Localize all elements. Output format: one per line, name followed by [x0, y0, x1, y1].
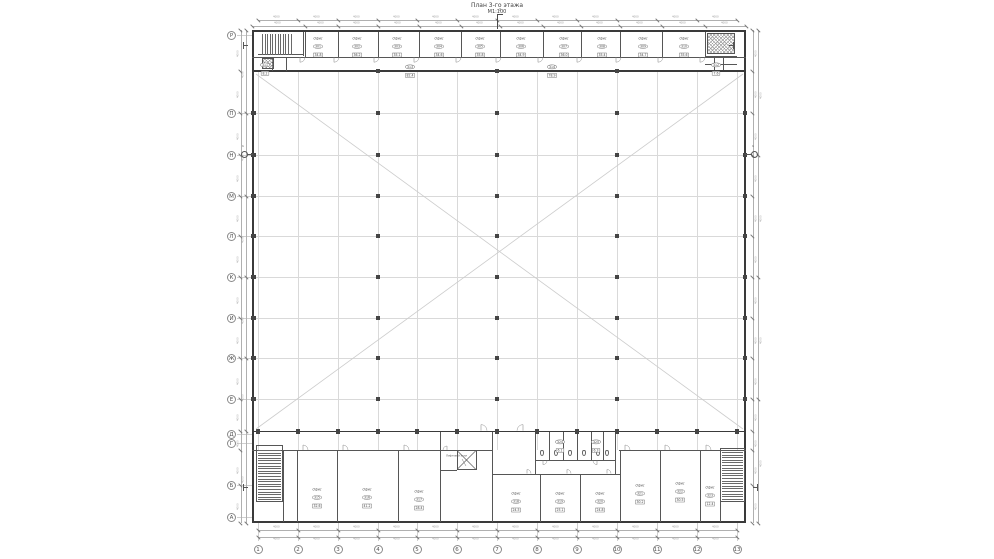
room-tag: Офис30434.6	[426, 37, 453, 58]
partition-wall	[457, 450, 458, 470]
section-label: 2	[499, 8, 501, 11]
dimension-label: 4000	[242, 317, 245, 324]
column	[376, 153, 381, 158]
dimension-label: 4000	[672, 538, 679, 541]
dimension-label: 4000	[237, 467, 240, 474]
room-area: 41.2	[362, 504, 372, 509]
dimension-tick	[750, 69, 754, 73]
dimension-label: 4000	[237, 256, 240, 263]
room-area: 34.9	[516, 53, 526, 58]
stair-tread	[722, 478, 743, 479]
stair-tread	[258, 471, 281, 472]
axis-bubble-bottom: 1	[254, 545, 263, 554]
partition-wall	[615, 432, 616, 474]
partition-wall	[540, 474, 541, 522]
dimension-tick	[238, 111, 242, 115]
room-area: 32.6	[312, 504, 322, 509]
section-marker	[247, 154, 253, 155]
axis-bubble-bottom: 7	[493, 545, 502, 554]
dimension-tick	[660, 24, 664, 28]
toilet-fixture-icon	[540, 450, 544, 456]
partition-wall	[476, 450, 477, 470]
stair-tread	[258, 489, 281, 490]
room-area: 24.8	[595, 508, 605, 513]
grid-line-vertical	[617, 72, 618, 450]
room-area: 34.7	[638, 53, 648, 58]
column	[495, 356, 500, 361]
dimension-tick	[250, 24, 254, 28]
dimension-label: 4000	[237, 440, 240, 447]
partition-wall	[577, 432, 578, 460]
dimension-tick	[238, 28, 242, 32]
room-tag: Офис31824.5	[503, 492, 530, 513]
dimension-label: 4000	[237, 378, 240, 385]
room-number: 310	[679, 44, 689, 49]
partition-wall	[398, 450, 399, 522]
section-marker	[497, 14, 498, 29]
dimension-label: 4000	[512, 538, 519, 541]
dimension-tick	[703, 24, 707, 28]
dimension-tick	[455, 535, 459, 539]
section-marker	[497, 14, 503, 15]
stair-tread	[722, 457, 743, 458]
dimension-tick	[238, 356, 242, 360]
dimension-label: 4000	[512, 16, 519, 19]
shaft-hatch	[707, 33, 735, 54]
partition-wall	[337, 450, 338, 522]
dimension-tick	[238, 448, 242, 452]
stair-tread	[270, 34, 271, 55]
room-number: 301	[313, 44, 323, 49]
axis-bubble-left: А	[227, 513, 236, 522]
column	[251, 194, 256, 199]
column	[615, 111, 620, 116]
room-number: 302	[352, 44, 362, 49]
dimension-label: 4000	[755, 440, 758, 447]
room-area: 8.2	[261, 71, 269, 76]
column	[743, 397, 748, 402]
section-label: 1	[242, 145, 244, 148]
room-number: 318	[511, 499, 521, 504]
stair-tread	[258, 492, 281, 493]
axis-bubble-bottom: 9	[573, 545, 582, 554]
room-number: 321	[635, 491, 645, 496]
stair-tread	[258, 453, 281, 454]
grid-line-vertical	[457, 72, 458, 450]
room-area: 24.5	[511, 508, 521, 513]
stair-tread	[258, 479, 281, 480]
grid-line-vertical	[537, 72, 538, 450]
dimension-tick	[415, 535, 419, 539]
stair-tread	[722, 483, 743, 484]
dimension-label: 4000	[237, 50, 240, 57]
column	[743, 356, 748, 361]
column	[376, 234, 381, 239]
dimension-tick	[256, 18, 260, 22]
room-area: 28.4	[414, 506, 424, 511]
column	[743, 234, 748, 239]
floor-plan-canvas: План 3-го этажа М1:100 12345678910111213…	[0, 0, 994, 559]
room-number: 320	[595, 499, 605, 504]
dimension-tick	[655, 535, 659, 539]
room-tag: Офис32312.4	[697, 486, 724, 507]
dimension-tick	[238, 275, 242, 279]
room-tag: Офис30634.9	[508, 37, 535, 58]
grid-line-vertical	[697, 72, 698, 450]
column	[376, 429, 381, 434]
column	[495, 275, 500, 280]
room-tag: Офис30934.7	[630, 37, 657, 58]
dimension-label: 4000	[672, 526, 679, 529]
column	[743, 275, 748, 280]
dimension-tick	[336, 24, 340, 28]
dimension-label: 4000	[755, 337, 758, 344]
dimension-tick	[750, 194, 754, 198]
room-area: 34.6	[434, 53, 444, 58]
dimension-tick	[618, 24, 622, 28]
dimension-label: 4000	[313, 538, 320, 541]
section-flag	[729, 45, 734, 46]
room-tag: Офис31728.4	[406, 490, 433, 511]
column	[251, 397, 256, 402]
stair-tread	[262, 34, 263, 55]
dimension-label: 4000	[636, 22, 643, 25]
room-tag: Офис30736.0	[551, 37, 578, 58]
partition-wall	[580, 474, 581, 522]
room-tag: Офис32130.2	[627, 484, 654, 505]
column	[495, 397, 500, 402]
partition-wall	[256, 445, 283, 446]
column	[336, 429, 341, 434]
room-tag: Офис30535.8	[467, 37, 494, 58]
column	[575, 429, 580, 434]
partition-wall	[492, 432, 493, 474]
grid-line-vertical	[378, 72, 379, 450]
partition-wall	[581, 32, 582, 57]
dimension-tick	[417, 24, 421, 28]
dimension-label: 4000	[393, 16, 400, 19]
partition-wall	[419, 32, 420, 57]
room-area: 7.6	[712, 71, 720, 76]
partition-wall	[535, 432, 536, 474]
axis-bubble-bottom: 3	[334, 545, 343, 554]
column	[376, 275, 381, 280]
stair-tread	[258, 473, 281, 474]
room-tag: Офис30335.1	[384, 37, 411, 58]
axis-bubble-bottom: 5	[413, 545, 422, 554]
room-tag: 3246.1	[547, 436, 574, 453]
dimension-label: 4000	[672, 16, 679, 19]
column	[615, 275, 620, 280]
dimension-label: 4000	[760, 460, 763, 467]
dimension-label: 4000	[435, 22, 442, 25]
room-area: 6.1	[556, 448, 564, 453]
partition-wall	[440, 432, 441, 451]
dimension-label: 4000	[712, 16, 719, 19]
dimension-label: 4000	[393, 538, 400, 541]
dimension-label: 4000	[432, 526, 439, 529]
stair-tread	[258, 458, 281, 459]
column	[615, 429, 620, 434]
column	[251, 111, 256, 116]
axis-extension-line	[237, 517, 252, 518]
partition-wall	[461, 32, 462, 57]
stair-tread	[258, 499, 281, 500]
dimension-tick	[541, 24, 545, 28]
column	[495, 153, 500, 158]
dimension-label: 4000	[755, 50, 758, 57]
room-area: 35.6	[679, 53, 689, 58]
dimension-label: 4000	[393, 526, 400, 529]
dimension-label: 4000	[592, 538, 599, 541]
room-area: 12.4	[705, 502, 715, 507]
partition-wall	[660, 450, 661, 522]
room-area: 25.1	[555, 508, 565, 513]
column	[495, 316, 500, 321]
axis-bubble-bottom: 6	[453, 545, 462, 554]
dimension-tick	[615, 535, 619, 539]
room-area: 35.8	[475, 53, 485, 58]
dimension-label: 4000	[760, 337, 763, 344]
dimension-tick	[750, 448, 754, 452]
room-number: 303	[392, 44, 402, 49]
room-area: 35.1	[392, 53, 402, 58]
stair-tread	[258, 484, 281, 485]
dimension-label: 4000	[273, 538, 280, 541]
dimension-label: 4000	[237, 503, 240, 510]
room-tag: Офис32024.8	[587, 492, 614, 513]
column	[251, 356, 256, 361]
stair-tread	[722, 473, 743, 474]
section-marker	[745, 154, 751, 155]
axis-bubble-bottom: 8	[533, 545, 542, 554]
room-tag: Офис32230.5	[667, 482, 694, 503]
column	[615, 234, 620, 239]
room-number: 312	[711, 63, 721, 68]
dimension-label: 4000	[432, 16, 439, 19]
axis-bubble-left: Е	[227, 395, 236, 404]
partition-wall	[705, 32, 706, 57]
dimension-tick	[256, 535, 260, 539]
partition-wall	[440, 450, 441, 522]
room-number: 319	[555, 499, 565, 504]
dimension-label: 4000	[313, 526, 320, 529]
stair-tread	[722, 496, 743, 497]
stair-tread	[722, 494, 743, 495]
dimension-label: 4000	[432, 538, 439, 541]
stair-tread	[722, 499, 743, 500]
dimension-label: 4000	[353, 22, 360, 25]
dimension-label: 4000	[237, 91, 240, 98]
partition-wall	[662, 32, 663, 57]
room-number: 323	[705, 493, 715, 498]
dimension-tick	[750, 234, 754, 238]
dimension-label: 4000	[394, 22, 401, 25]
dimension-tick	[238, 521, 242, 525]
stair-tread	[258, 455, 281, 456]
dimension-label: 4000	[755, 215, 758, 222]
dimension-label: 4000	[512, 526, 519, 529]
partition-wall	[720, 448, 745, 449]
dimension-tick	[750, 111, 754, 115]
dimension-tick	[303, 24, 307, 28]
column	[376, 69, 381, 74]
dimension-label: 4000	[557, 22, 564, 25]
dimension-label: 4000	[237, 215, 240, 222]
stair-tread	[265, 34, 266, 55]
partition-wall	[282, 445, 283, 502]
column	[495, 234, 500, 239]
dimension-label: 4000	[721, 22, 728, 25]
stair-tread	[278, 34, 279, 55]
stair-tread	[258, 494, 281, 495]
room-number: 322	[675, 489, 685, 494]
room-number: 309	[638, 44, 648, 49]
dimension-label: 4000	[472, 538, 479, 541]
grid-line-vertical	[497, 72, 498, 450]
stair-tread	[722, 465, 743, 466]
column	[251, 316, 256, 321]
room-area: 30.2	[635, 500, 645, 505]
leader-note: Лифтовой холл	[446, 455, 467, 458]
dimension-label: 4000	[353, 538, 360, 541]
column	[743, 194, 748, 199]
column	[376, 316, 381, 321]
room-number: 313	[405, 65, 415, 70]
partition-wall	[256, 445, 257, 502]
column	[415, 429, 420, 434]
dimension-label: 4000	[755, 175, 758, 182]
room-tag: 3127.6	[703, 59, 730, 76]
room-tag: Офис31925.1	[547, 492, 574, 513]
dimension-label: 4000	[237, 133, 240, 140]
column	[376, 356, 381, 361]
dimension-tick	[535, 535, 539, 539]
stair-tread	[722, 455, 743, 456]
partition-wall	[283, 450, 284, 522]
stair-tread	[258, 486, 281, 487]
partition-wall	[338, 32, 339, 57]
dimension-label: 4000	[679, 22, 686, 25]
stair-tread	[722, 470, 743, 471]
room-number: 324	[555, 440, 565, 445]
room-tag: 31478.9	[539, 61, 566, 78]
dimension-tick	[750, 316, 754, 320]
axis-bubble-left: К	[227, 273, 236, 282]
grid-line-vertical	[737, 72, 738, 450]
column	[495, 194, 500, 199]
dimension-label: 4000	[632, 538, 639, 541]
dimension-tick	[244, 521, 248, 525]
partition-wall	[619, 450, 746, 451]
dimension-tick	[750, 356, 754, 360]
room-tag: Офис30134.8	[305, 37, 332, 58]
partition-wall	[543, 32, 544, 57]
room-number: 311	[260, 63, 270, 68]
axis-bubble-bottom: 12	[693, 545, 702, 554]
partition-wall	[297, 450, 298, 522]
axis-extension-line	[237, 35, 252, 36]
dimension-label: 4000	[755, 256, 758, 263]
column	[376, 111, 381, 116]
wall	[252, 30, 746, 32]
room-number: 317	[414, 497, 424, 502]
dimension-label: 4000	[552, 16, 559, 19]
dimension-label: 4000	[274, 22, 281, 25]
partition-wall	[620, 450, 621, 522]
stair-tread	[722, 488, 743, 489]
wall	[252, 521, 746, 523]
dimension-label: 4000	[712, 538, 719, 541]
room-tag: 3256.3	[583, 436, 610, 453]
stair-tread	[722, 491, 743, 492]
column	[296, 429, 301, 434]
stair-tread	[258, 466, 281, 467]
dimension-tick	[376, 24, 380, 28]
dimension-label: 4000	[755, 378, 758, 385]
room-number: 308	[597, 44, 607, 49]
room-tag: 3118.2	[252, 59, 279, 76]
drawing-title-text: План 3-го этажа	[0, 2, 994, 9]
dimension-label: 4000	[632, 16, 639, 19]
dimension-tick	[750, 397, 754, 401]
dimension-tick	[579, 24, 583, 28]
room-area: 36.0	[559, 53, 569, 58]
axis-bubble-bottom: 11	[653, 545, 662, 554]
dimension-tick	[744, 24, 748, 28]
dimension-label: 4000	[755, 133, 758, 140]
dimension-label: 4000	[472, 526, 479, 529]
grid-line-vertical	[298, 72, 299, 450]
column	[376, 194, 381, 199]
dimension-tick	[498, 24, 502, 28]
stair-tread	[258, 463, 281, 464]
dimension-tick	[238, 429, 242, 433]
dimension-label: 4000	[755, 414, 758, 421]
grid-line-vertical	[338, 72, 339, 450]
partition-wall	[457, 469, 476, 470]
dimension-label: 4000	[353, 16, 360, 19]
dimension-label: 4000	[242, 476, 245, 483]
dimension-tick	[756, 521, 760, 525]
room-number: 304	[434, 44, 444, 49]
dimension-tick	[459, 24, 463, 28]
dimension-label: 4000	[712, 526, 719, 529]
dimension-tick	[575, 535, 579, 539]
partition-wall	[457, 450, 476, 451]
column	[615, 194, 620, 199]
section-flag	[243, 487, 248, 488]
grid-line-vertical	[657, 72, 658, 450]
column	[535, 429, 540, 434]
room-number: 325	[591, 440, 601, 445]
stair-tread	[722, 462, 743, 463]
section-flag	[243, 45, 248, 46]
axis-bubble-bottom: 13	[733, 545, 742, 554]
dimension-label: 4000	[760, 215, 763, 222]
column	[495, 69, 500, 74]
partition-wall	[535, 460, 616, 461]
room-tag: Офис30835.4	[589, 37, 616, 58]
room-area: 34.8	[313, 53, 323, 58]
axis-bubble-left: Р	[227, 31, 236, 40]
dimension-tick	[238, 194, 242, 198]
column	[256, 429, 261, 434]
stair-tread	[722, 481, 743, 482]
column	[735, 429, 740, 434]
dimension-label: 4000	[552, 526, 559, 529]
dimension-label: 4000	[237, 297, 240, 304]
